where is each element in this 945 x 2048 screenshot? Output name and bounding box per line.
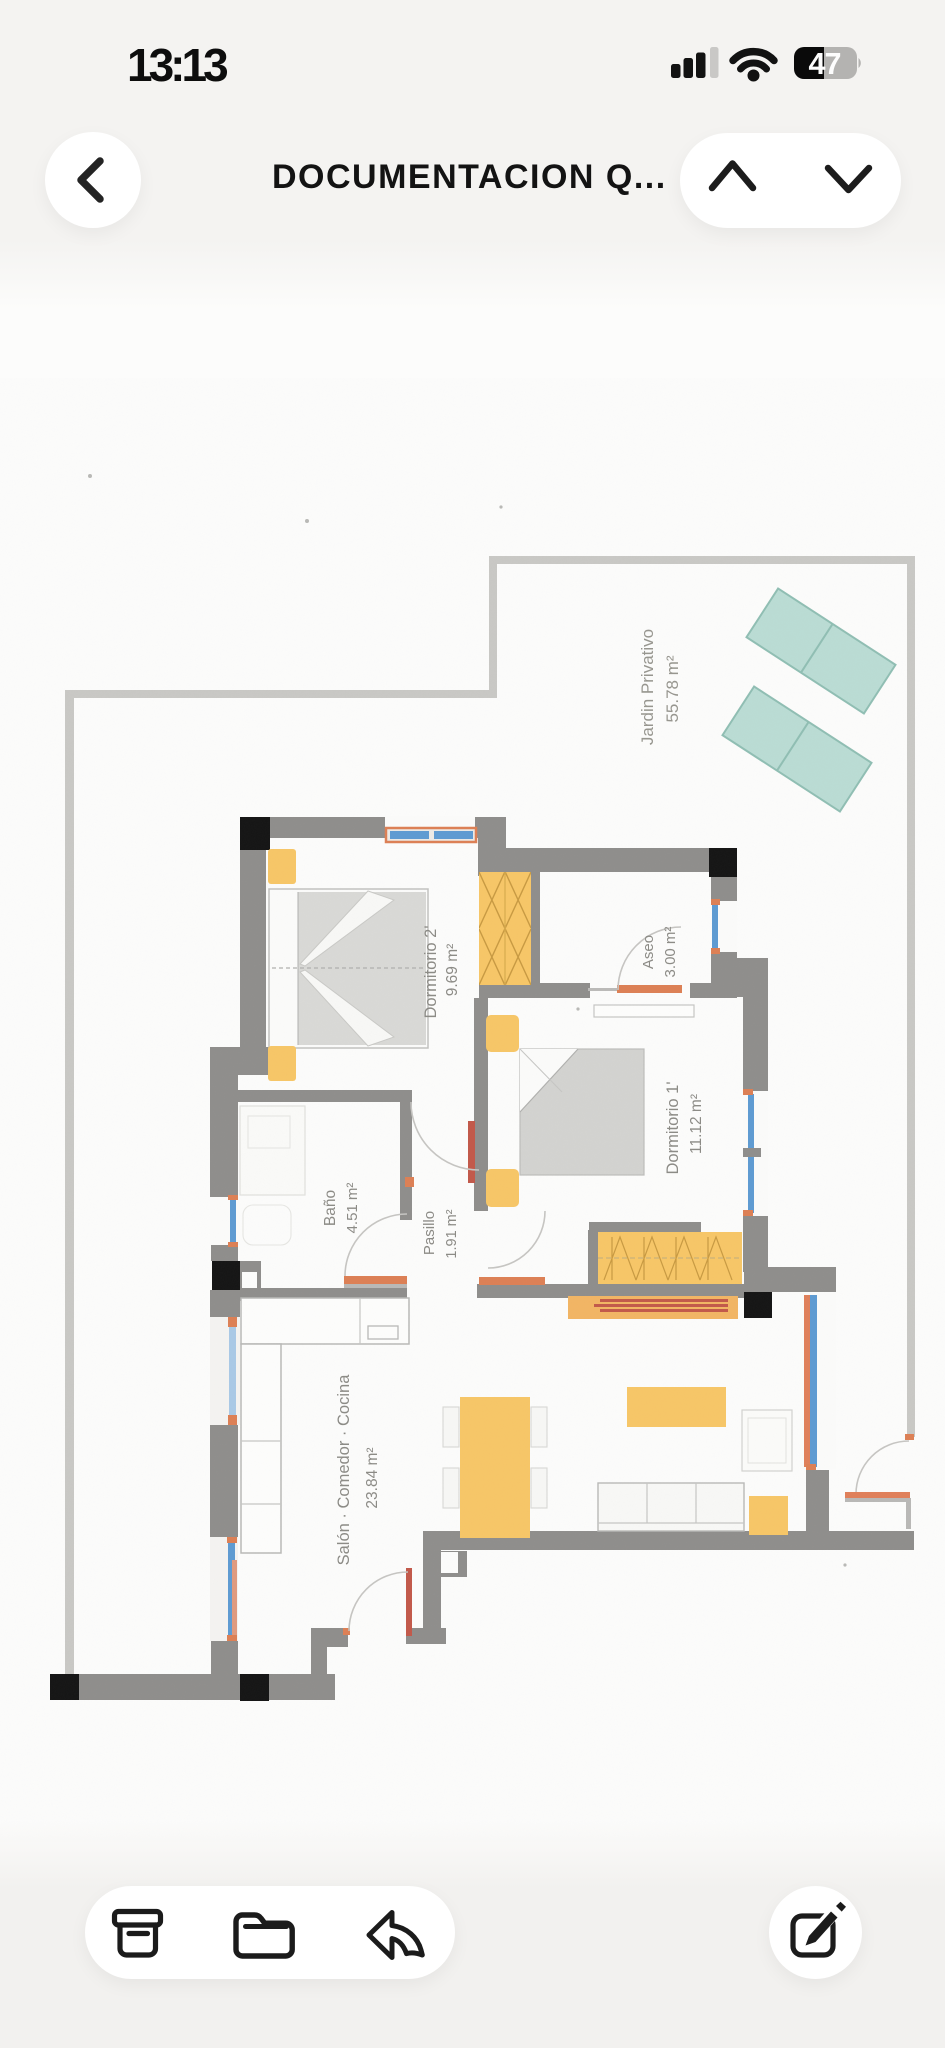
svg-text:47: 47 bbox=[809, 47, 841, 81]
